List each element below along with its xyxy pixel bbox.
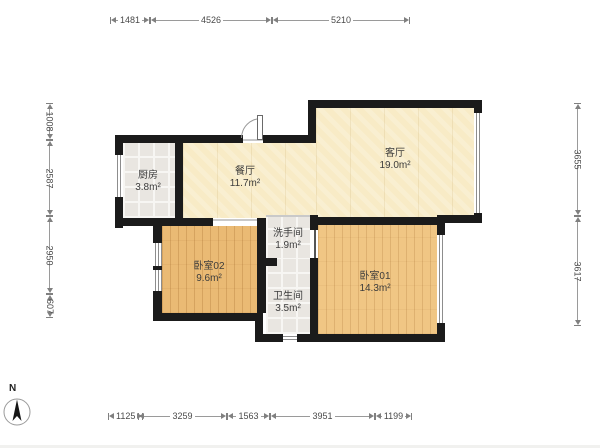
dim-line (353, 20, 404, 21)
bedroom02-area: 9.6m² (174, 273, 244, 285)
dim-value: 4526 (199, 15, 223, 26)
wall-living-top (308, 100, 482, 108)
dim-value: 1008 (44, 111, 55, 131)
dim-value: 2950 (44, 245, 55, 265)
dimension-bottom-4: 3951 (270, 410, 375, 422)
dimension-right-1: 3655 (571, 103, 584, 216)
dim-value: 1563 (236, 411, 260, 422)
kitchen-area: 3.8m² (119, 182, 177, 194)
dim-value: 3951 (310, 411, 334, 422)
dim-line (276, 416, 310, 417)
dim-value: 3617 (572, 261, 583, 281)
dim-value: 607 (44, 298, 55, 313)
dim-line (278, 20, 329, 21)
bathroom-vent-window (283, 334, 297, 342)
bathroom-area: 3.5m² (260, 303, 316, 315)
wall-bedroom02-bottom (153, 313, 263, 321)
dim-value: 1199 (382, 411, 405, 422)
dining-area: 11.7m² (205, 178, 285, 190)
dim-value: 3259 (170, 411, 194, 422)
floor-plan-page: 厨房 3.8m² 餐厅 11.7m² 客厅 19.0m² 洗手间 1.9m² 卧… (0, 0, 600, 448)
washroom-label: 洗手间 1.9m² (261, 228, 315, 252)
washroom-area: 1.9m² (261, 240, 315, 252)
dim-line (577, 222, 578, 266)
bedroom02-name: 卧室02 (174, 261, 244, 273)
living-name: 客厅 (355, 148, 435, 160)
bedroom01-area: 14.3m² (340, 283, 410, 295)
dimension-top-3: 5210 (272, 14, 410, 26)
dimension-right-2: 3617 (571, 216, 584, 326)
washroom-opening (266, 215, 310, 217)
dim-line (195, 416, 221, 417)
wall-top-left (115, 135, 243, 143)
living-label: 客厅 19.0m² (355, 148, 435, 172)
dim-tick (46, 317, 53, 318)
dim-tick (574, 325, 581, 326)
dim-line (335, 416, 369, 417)
bathroom-label: 卫生间 3.5m² (260, 291, 316, 315)
dimension-top-1: 1481 (110, 14, 150, 26)
bedroom02-label: 卧室02 9.6m² (174, 261, 244, 285)
dimension-bottom-5: 1199 (375, 410, 412, 422)
wall-washbath-divider (266, 258, 277, 266)
bedroom01-name: 卧室01 (340, 271, 410, 283)
dimension-bottom-1: 1125 (108, 410, 138, 422)
dimension-left-3: 2950 (43, 216, 56, 294)
dimension-bottom-2: 3259 (138, 410, 227, 422)
wall-step-vertical (308, 100, 316, 143)
dimension-top-2: 4526 (150, 14, 272, 26)
wall-bedroom01-bottom (310, 334, 445, 342)
dim-value: 5210 (329, 15, 353, 26)
bathroom-name: 卫生间 (260, 291, 316, 303)
dim-line (577, 277, 578, 321)
compass-north-label: N (9, 383, 16, 394)
compass-icon (3, 398, 31, 426)
living-area: 19.0m² (355, 160, 435, 172)
dimension-bottom-3: 1563 (227, 410, 270, 422)
dim-line (156, 20, 199, 21)
dim-tick (409, 17, 410, 24)
entry-door-leaf (257, 115, 263, 140)
dim-line (223, 20, 266, 21)
dim-line (577, 109, 578, 154)
dimension-left-2: 2587 (43, 140, 56, 216)
dimension-left-4: 607 (43, 294, 56, 318)
dim-value: 2587 (44, 168, 55, 188)
kitchen-label: 厨房 3.8m² (119, 170, 177, 194)
bedroom01-label: 卧室01 14.3m² (340, 271, 410, 295)
wall-bedroom01-top (310, 217, 445, 225)
living-window (474, 113, 482, 213)
bedroom02-door-opening (213, 219, 257, 221)
dim-line (144, 416, 170, 417)
dim-line (577, 165, 578, 210)
dimension-left-1: 1008 (43, 103, 56, 140)
washroom-name: 洗手间 (261, 228, 315, 240)
wall-kitchen-bottom (115, 218, 213, 226)
dim-value: 1125 (114, 411, 137, 422)
dim-value: 3655 (572, 149, 583, 169)
dim-value: 1481 (118, 15, 142, 26)
dining-label: 餐厅 11.7m² (205, 166, 285, 190)
dining-name: 餐厅 (205, 166, 285, 178)
bedroom02-window-b (153, 270, 162, 291)
bedroom02-window-a (153, 243, 162, 266)
dim-tick (411, 413, 412, 420)
kitchen-name: 厨房 (119, 170, 177, 182)
bedroom01-window (437, 235, 445, 323)
